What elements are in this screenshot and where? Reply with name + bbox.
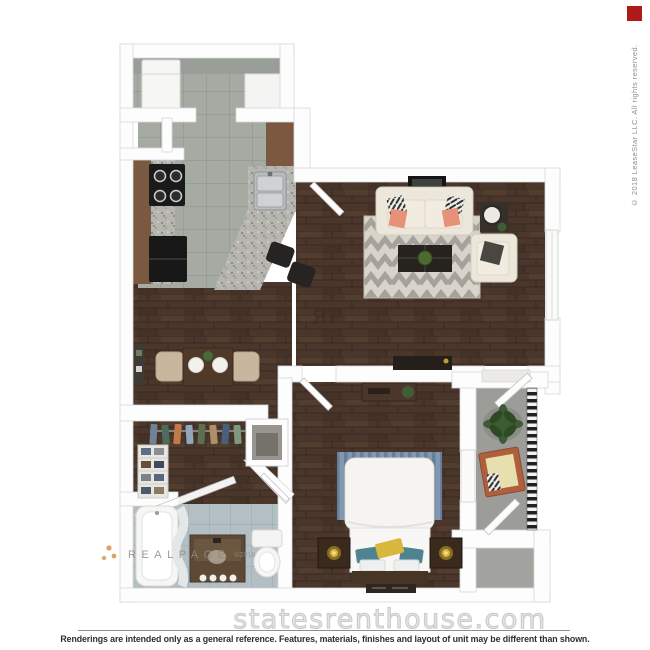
copyright-vertical-text: © 2018 LeaseStar LLC. All rights reserve… xyxy=(630,22,644,207)
footer-divider xyxy=(78,630,570,631)
coral-pillow xyxy=(442,208,461,228)
dining-chair xyxy=(156,352,184,381)
dining-area-floor xyxy=(133,282,292,407)
toilet xyxy=(252,530,282,577)
coral-pillow xyxy=(389,209,408,229)
dresser xyxy=(362,383,416,401)
place-setting xyxy=(189,358,204,373)
place-setting xyxy=(213,358,228,373)
bed-bench xyxy=(352,571,428,584)
realpage-monogram-watermark: ЯP xyxy=(311,305,345,329)
patio-nook-floor xyxy=(476,546,534,590)
realpage-copyright: ©2018 xyxy=(235,552,256,559)
duvet xyxy=(345,458,434,530)
bed xyxy=(345,458,434,584)
sofa xyxy=(376,187,473,235)
realpage-logo-dots-icon xyxy=(100,543,122,567)
console-table xyxy=(393,356,452,370)
floor-plan-page: © 2018 LeaseStar LLC. All rights reserve… xyxy=(0,0,650,650)
realpage-label: REALPAGE xyxy=(128,549,231,561)
table-plant xyxy=(203,351,213,361)
dining-chair xyxy=(231,352,259,381)
washer xyxy=(142,60,180,110)
shoe-rack xyxy=(138,445,168,498)
dresser-plant xyxy=(402,386,414,398)
red-indicator-square xyxy=(627,6,642,21)
armchair xyxy=(471,234,517,282)
side-table xyxy=(480,202,508,232)
bedroom-window xyxy=(461,450,475,502)
linen-cabinet xyxy=(246,419,288,466)
disclaimer-text: Renderings are intended only as a genera… xyxy=(0,634,650,644)
realpage-watermark: REALPAGE ©2018 xyxy=(100,543,255,567)
coffee-table xyxy=(398,245,452,272)
patio-chair xyxy=(478,447,525,497)
laundry-counter xyxy=(245,74,281,110)
patio-railing xyxy=(527,388,537,530)
small-plant xyxy=(498,223,507,232)
